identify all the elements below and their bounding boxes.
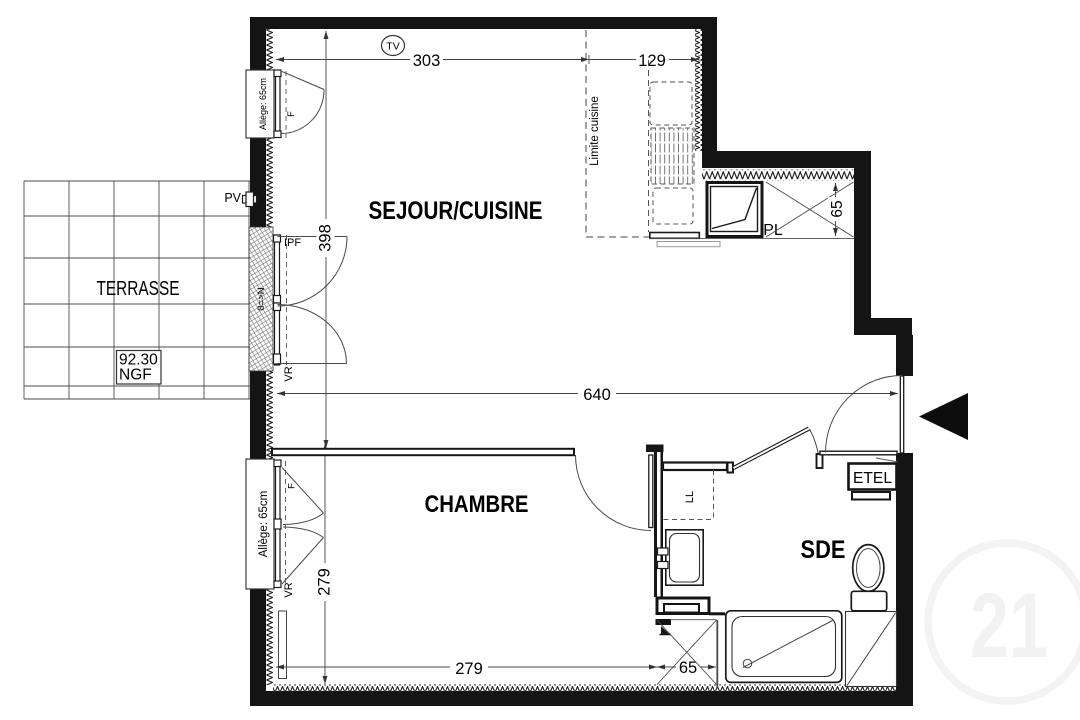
svg-text:65: 65: [679, 659, 697, 677]
svg-text:ETEL: ETEL: [853, 470, 892, 487]
svg-text:TERRASSE: TERRASSE: [97, 278, 180, 300]
svg-text:303: 303: [413, 52, 441, 70]
svg-text:LL: LL: [684, 491, 696, 503]
svg-text:Limite cuisine: Limite cuisine: [589, 96, 601, 166]
svg-text:65: 65: [829, 200, 846, 217]
svg-text:PV: PV: [224, 191, 241, 205]
svg-text:F: F: [287, 483, 298, 489]
svg-text:Allège: 65cm: Allège: 65cm: [258, 78, 268, 130]
svg-text:VR: VR: [283, 366, 295, 381]
svg-text:398: 398: [317, 224, 335, 252]
svg-text:SEJOUR/CUISINE: SEJOUR/CUISINE: [369, 197, 543, 225]
svg-text:129: 129: [638, 52, 666, 70]
svg-text:Allège: 65cm: Allège: 65cm: [258, 491, 270, 557]
svg-text:VR: VR: [283, 582, 295, 597]
svg-text:IPF: IPF: [284, 237, 301, 249]
svg-text:8=>N: 8=>N: [256, 287, 267, 310]
svg-text:279: 279: [455, 660, 483, 678]
svg-text:CHAMBRE: CHAMBRE: [425, 491, 529, 518]
svg-text:640: 640: [583, 386, 611, 404]
svg-text:F: F: [286, 111, 297, 117]
svg-text:21: 21: [970, 575, 1048, 677]
svg-text:279: 279: [316, 568, 334, 596]
svg-text:SDE: SDE: [801, 536, 846, 564]
svg-text:NGF: NGF: [119, 367, 152, 384]
svg-text:TV: TV: [386, 41, 399, 53]
